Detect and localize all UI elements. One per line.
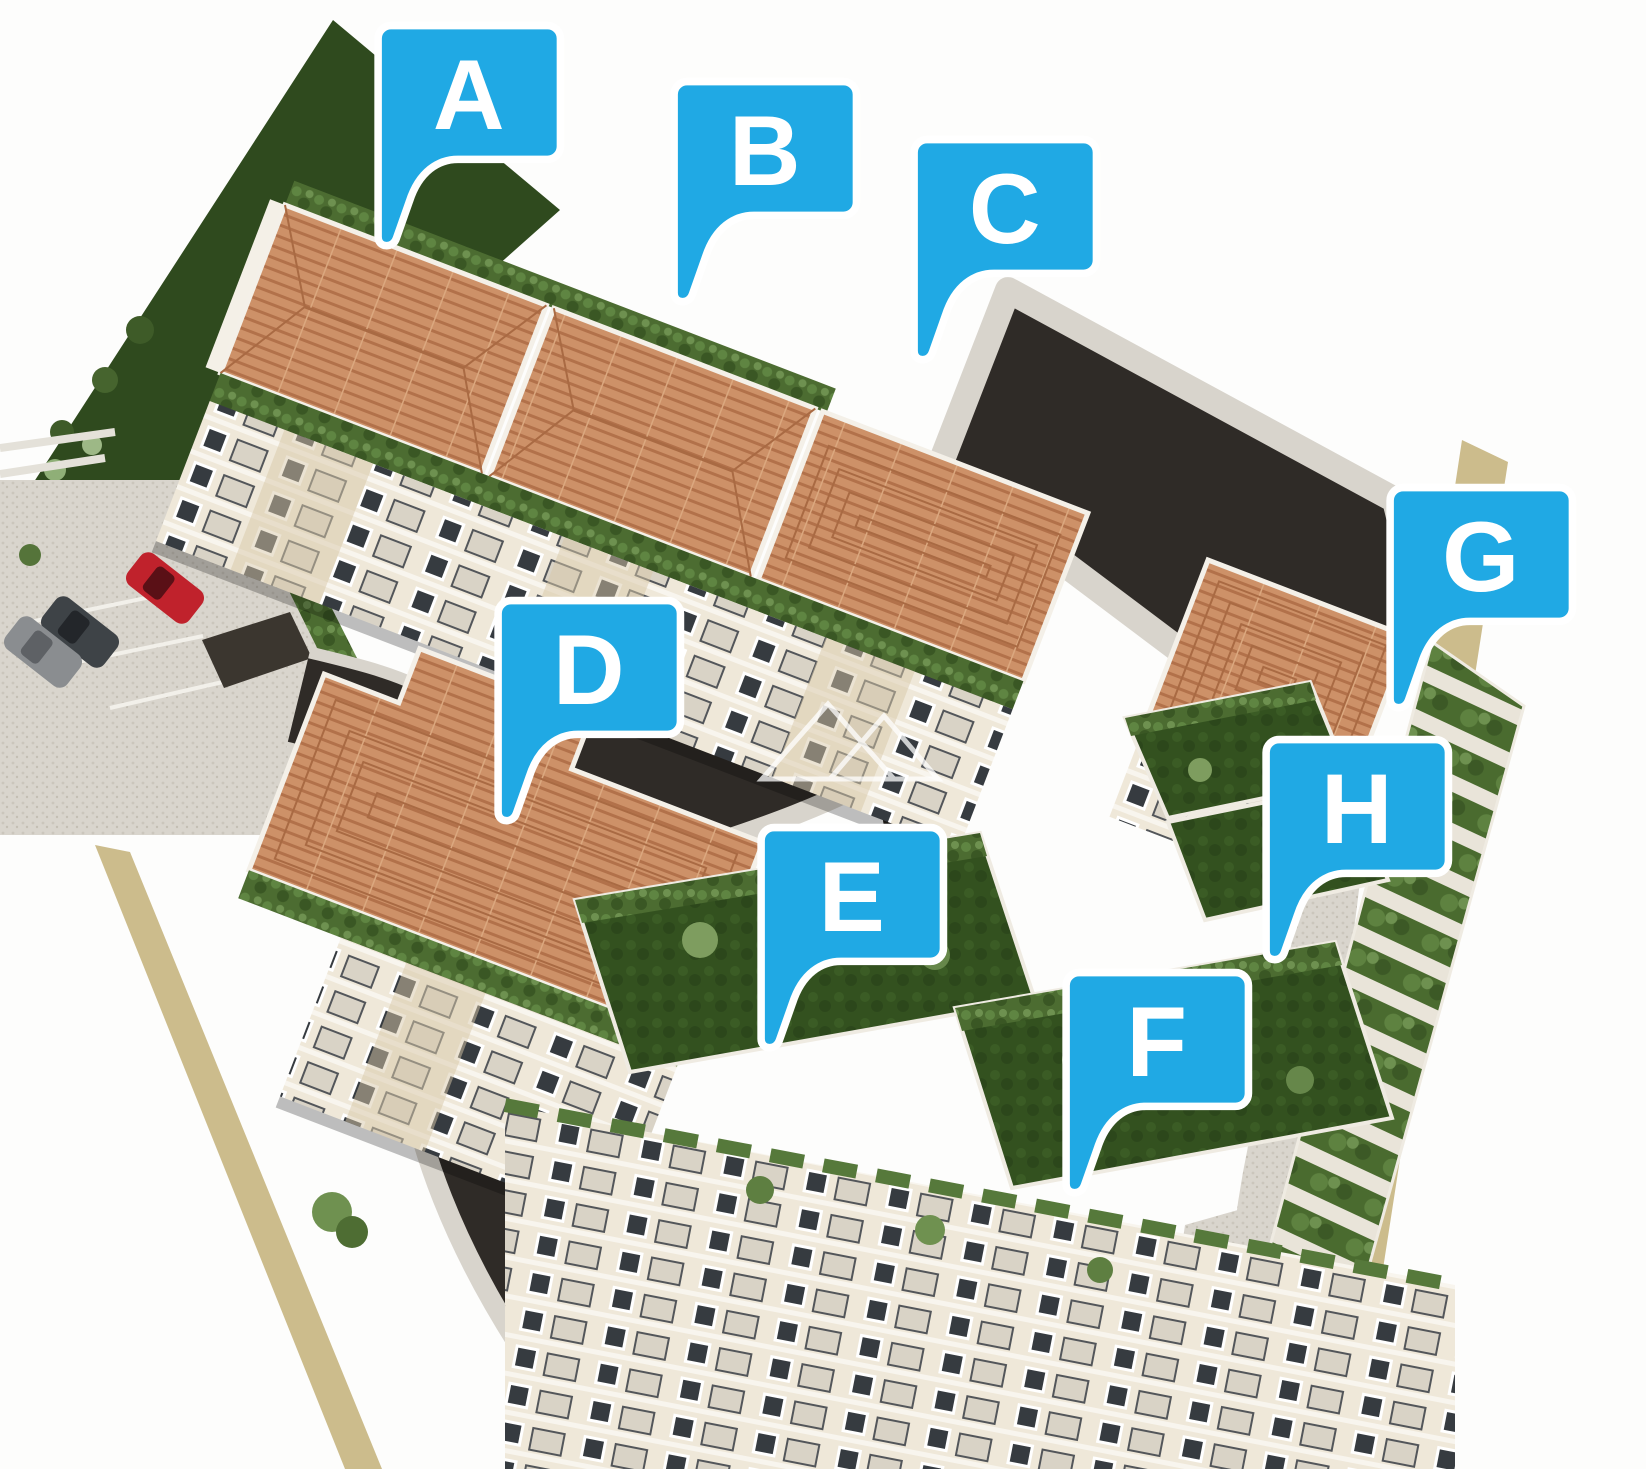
- label-letter: C: [969, 154, 1041, 265]
- building-label-b[interactable]: B: [659, 74, 864, 320]
- label-letter: H: [1321, 754, 1393, 865]
- building-label-h[interactable]: H: [1251, 732, 1456, 978]
- site-plan-page: A B C D E F G H: [0, 0, 1646, 1469]
- label-letter: G: [1442, 502, 1519, 613]
- label-letter: B: [729, 96, 801, 207]
- building-label-g[interactable]: G: [1375, 480, 1580, 726]
- building-label-f[interactable]: F: [1051, 965, 1256, 1211]
- label-letter: D: [553, 615, 625, 726]
- label-letter: E: [819, 842, 885, 953]
- street-tree: [336, 1216, 368, 1248]
- building-label-d[interactable]: D: [483, 593, 688, 839]
- label-letter: F: [1126, 987, 1187, 1098]
- label-letter: A: [433, 40, 505, 151]
- building-label-e[interactable]: E: [746, 820, 951, 1066]
- building-label-a[interactable]: A: [363, 18, 568, 264]
- building-label-c[interactable]: C: [899, 132, 1104, 378]
- tree: [19, 544, 41, 566]
